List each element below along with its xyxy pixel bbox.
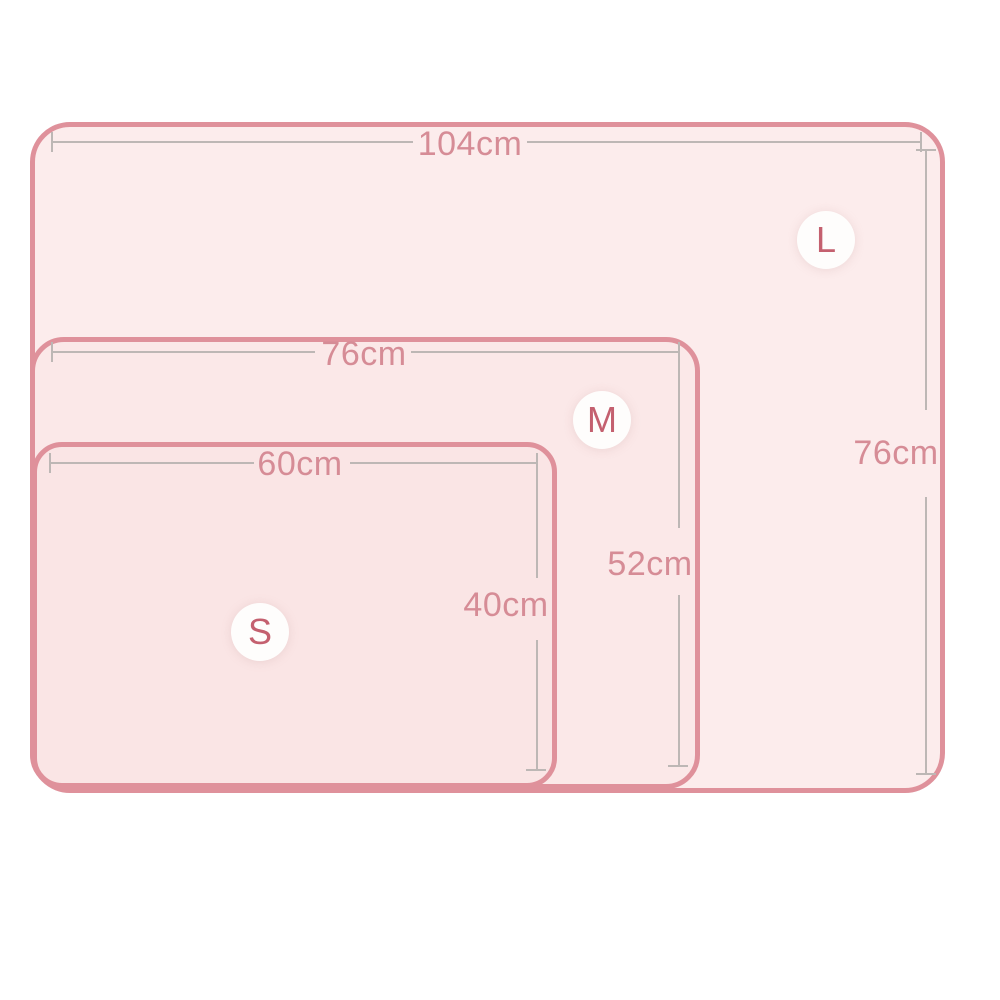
size-badge-letter-medium: M [587,402,617,438]
size-badge-large: L [797,211,855,269]
size-badge-medium: M [573,391,631,449]
size-badge-letter-small: S [248,614,272,650]
size-badge-small: S [231,603,289,661]
width-dimension-line-large [527,141,922,143]
width-dimension-line-small [50,462,254,464]
width-dimension-line-small [350,462,538,464]
width-dimension-line-medium [52,351,315,353]
size-badge-letter-large: L [816,222,836,258]
dimension-tick [526,769,546,771]
height-dimension-line-large [925,497,927,775]
height-dimension-line-medium [678,595,680,767]
dimension-tick [678,342,680,362]
height-dimension-line-large [925,150,927,410]
dimension-tick [51,132,53,152]
dimension-tick [51,342,53,362]
height-label-large: 76cm [853,436,938,470]
width-label-large: 104cm [418,127,523,161]
width-label-small: 60cm [257,447,342,481]
dimension-tick [916,149,936,151]
dimension-tick [916,773,936,775]
width-label-medium: 76cm [321,337,406,371]
size-diagram: 104cm 76cm 76cm 52cm 60cm 40cm L M S [0,0,1000,1000]
height-dimension-line-small [536,470,538,578]
width-dimension-line-large [52,141,413,143]
dimension-tick [49,453,51,473]
dimension-tick [668,765,688,767]
height-label-small: 40cm [463,588,548,622]
height-dimension-line-medium [678,360,680,528]
width-dimension-line-medium [411,351,680,353]
height-dimension-line-small [536,640,538,771]
height-label-medium: 52cm [607,547,692,581]
